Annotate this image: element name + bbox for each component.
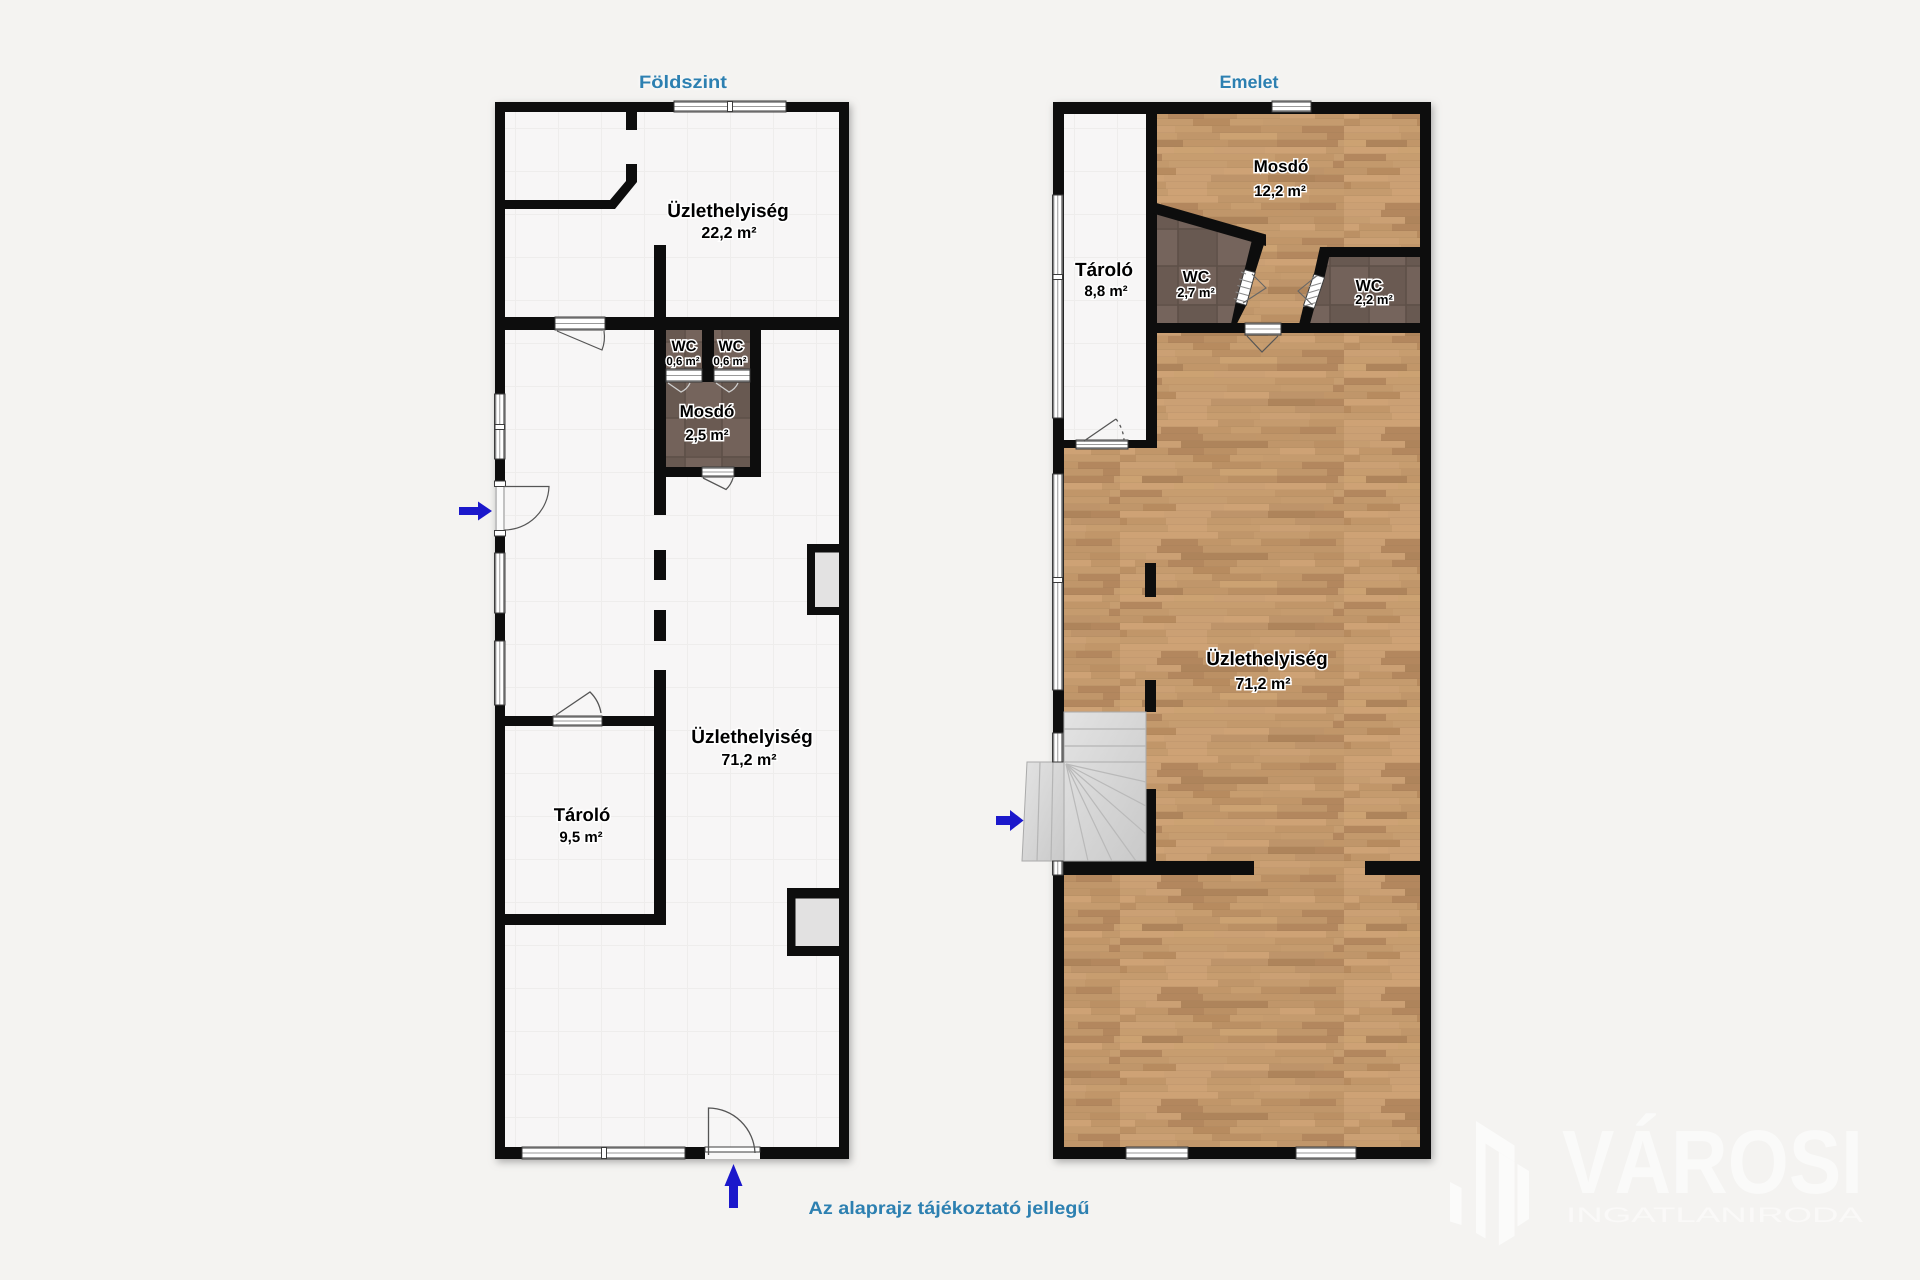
svg-text:VÁROSI: VÁROSI	[1562, 1113, 1863, 1213]
svg-text:9,5 m²: 9,5 m²	[559, 829, 602, 846]
svg-text:2,7 m²: 2,7 m²	[1177, 285, 1215, 300]
svg-text:Üzlethelyiség: Üzlethelyiség	[691, 726, 812, 748]
svg-text:WC: WC	[1183, 269, 1210, 286]
svg-text:71,2 m²: 71,2 m²	[721, 752, 776, 769]
svg-text:Üzlethelyiség: Üzlethelyiség	[667, 200, 788, 222]
svg-text:Tároló: Tároló	[554, 804, 611, 825]
svg-text:Az alaprajz tájékoztató jelleg: Az alaprajz tájékoztató jellegű	[809, 1198, 1090, 1218]
svg-text:INGATLANIRODA: INGATLANIRODA	[1566, 1204, 1863, 1227]
svg-text:Tároló: Tároló	[1075, 260, 1133, 281]
svg-text:0,6 m²: 0,6 m²	[666, 356, 699, 368]
svg-text:WC: WC	[719, 338, 744, 355]
svg-text:WC: WC	[672, 338, 697, 355]
svg-text:Mosdó: Mosdó	[1254, 157, 1309, 176]
svg-text:0,6 m²: 0,6 m²	[713, 356, 746, 368]
svg-text:8,8 m²: 8,8 m²	[1084, 283, 1127, 300]
svg-text:Földszint: Földszint	[639, 72, 727, 92]
svg-text:Üzlethelyiség: Üzlethelyiség	[1206, 648, 1327, 670]
svg-text:22,2 m²: 22,2 m²	[701, 225, 756, 242]
svg-text:Mosdó: Mosdó	[680, 402, 735, 421]
svg-text:71,2 m²: 71,2 m²	[1235, 676, 1290, 693]
svg-text:2,2 m²: 2,2 m²	[1355, 292, 1393, 307]
svg-text:Emelet: Emelet	[1219, 72, 1278, 92]
svg-text:2,5 m²: 2,5 m²	[685, 427, 728, 444]
svg-text:12,2 m²: 12,2 m²	[1254, 183, 1306, 200]
